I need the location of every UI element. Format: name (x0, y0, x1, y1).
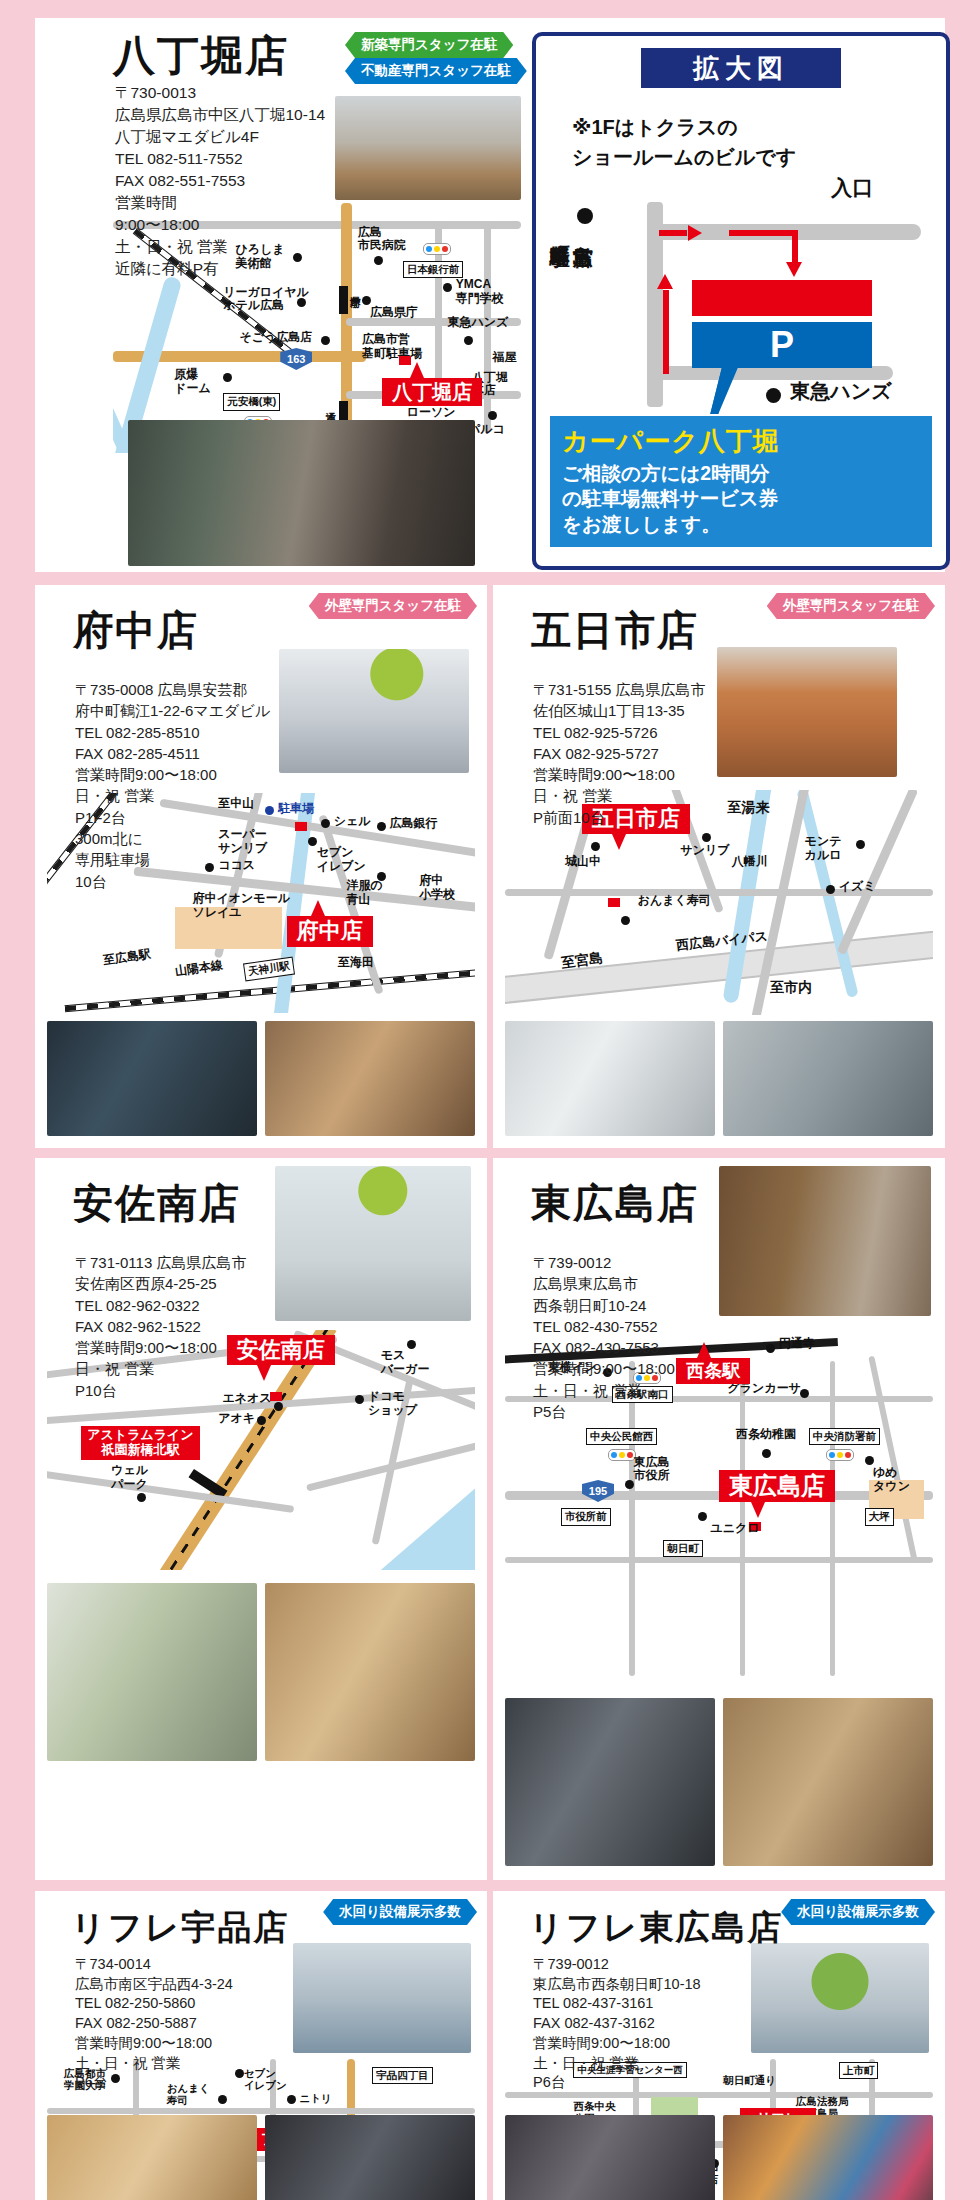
map-dot (362, 296, 371, 305)
map-dot (762, 1449, 771, 1458)
map-label: 宇品四丁目 (372, 2067, 433, 2085)
map-dot (297, 298, 306, 307)
flyer-page: { "colors":{"page_bg":"#f7cdd8","brand_r… (0, 0, 980, 2200)
location-marker-icon (399, 356, 411, 365)
store-photo (279, 649, 469, 773)
route-arrow (792, 230, 798, 262)
map-label: 日本銀行前 (403, 261, 464, 279)
map-dot (308, 837, 317, 846)
store-card-refre-higashihiroshima: 水回り設備展示多数 リフレ東広島店 〒739-0012 東広島市西条朝日町10-… (493, 1891, 945, 2200)
map-label: 中央消防署前 (809, 1428, 880, 1446)
map-dot (274, 1402, 283, 1411)
map-label: セブン イレブン (244, 2067, 287, 2091)
map-label: 府中 小学校 (419, 874, 455, 902)
map-dot (443, 283, 452, 292)
map-label: 至海田 (338, 956, 374, 970)
map-label: ニトリ (300, 2092, 332, 2104)
map-dot (137, 1493, 146, 1502)
map-label: シェル (334, 815, 371, 829)
parking-p-box: P (692, 322, 872, 368)
map-label: 西条幼稚園 (736, 1428, 796, 1442)
map-label: モス バーガー (381, 1349, 430, 1377)
road (47, 2108, 475, 2114)
map-label: 駐車場 (278, 802, 314, 816)
store-title: 安佐南店 (73, 1176, 241, 1231)
store-title: リフレ宇品店 (71, 1905, 289, 1951)
enlarged-map: 入口 P 広島市営 基町駐車場 東急ハンズ (536, 174, 946, 412)
store-info: 〒731-0113 広島県広島市 安佐南区西原4-25-25 TEL 082-9… (75, 1252, 246, 1401)
store-photo (723, 2115, 933, 2200)
map-dot (621, 916, 630, 925)
map-label: ローソン (407, 406, 456, 420)
store-card-hatchobori: 八丁堀店 新築専門スタッフ在駐 不動産専門スタッフ在駐 〒730-0013 広島… (35, 18, 945, 572)
map-dot (826, 885, 835, 894)
map-label: モンテ カルロ (805, 835, 842, 863)
store-card-fuchu: 外壁専門スタッフ在駐 府中店 〒735-0008 広島県安芸郡 府中町鶴江1-2… (35, 585, 487, 1148)
map-label: 原爆 ドーム (174, 368, 211, 396)
store-photo (723, 1021, 933, 1136)
traffic-signal-icon (608, 1449, 636, 1461)
route-arrow-head (688, 225, 702, 241)
enlarged-map-title: 拡大図 (641, 48, 841, 88)
map-label: 広島銀行 (389, 817, 437, 831)
map-dot (223, 373, 232, 382)
map-label: 至市内 (770, 979, 812, 995)
road (647, 366, 893, 380)
map-label: 広島 市民病院 (358, 226, 406, 254)
road (505, 1557, 933, 1563)
store-info: 〒739-0012 広島県東広島市 西条朝日町10-24 TEL 082-430… (533, 1252, 675, 1422)
traffic-signal-icon (423, 243, 451, 255)
map-dot (577, 208, 593, 224)
location-marker-icon (608, 898, 620, 907)
store-photo (265, 2115, 475, 2200)
store-photo (47, 1583, 257, 1761)
store-photo (47, 1021, 257, 1136)
map-label: 福屋 (492, 351, 516, 365)
carpark-name: カーパーク八丁堀 (562, 424, 920, 459)
map-dot (287, 2095, 296, 2104)
store-flag: 八丁堀店 (382, 378, 482, 406)
map-dot (766, 388, 781, 403)
map-label: 元安橋(東) (223, 393, 280, 411)
enlarged-map-note: ※1Fはトクラスの ショールームのビルです (572, 112, 946, 172)
map-label: ドコモ ショップ (368, 1390, 417, 1418)
river (381, 1488, 475, 1570)
store-photo (751, 1943, 929, 2053)
entrance-label: 入口 (831, 176, 873, 200)
store-photo (719, 1166, 931, 1316)
map-label: 大坪 (865, 1508, 894, 1526)
map-label: 至広島駅 (102, 948, 151, 968)
map-dot (591, 842, 600, 851)
store-card-asaminami: 安佐南店 〒731-0113 広島県広島市 安佐南区西原4-25-25 TEL … (35, 1158, 487, 1880)
station-flag: アストラムライン 祇園新橋北駅 (81, 1426, 199, 1460)
store-info: 〒730-0013 広島県広島市中区八丁堀10-14 八丁堀マエダビル4F TE… (115, 82, 325, 280)
map-label: 山陽本線 (175, 959, 224, 979)
map-label: ウェル パーク (111, 1464, 148, 1492)
road (868, 1356, 918, 1563)
map-label: 朝日町 (663, 1540, 703, 1558)
map-label: 中央公民館西 (586, 1428, 657, 1446)
store-photo (275, 1166, 471, 1321)
store-photo (505, 2115, 715, 2200)
map-label: そごう広島店 (239, 331, 312, 345)
map-dot (865, 1456, 874, 1465)
map-label: イズミ (839, 880, 876, 894)
store-title: 八丁堀店 (113, 28, 289, 84)
road (47, 1471, 294, 1514)
map-dot (702, 833, 711, 842)
map-label: リーガロイヤル ホテル広島 (223, 286, 309, 314)
map-dot (321, 336, 330, 345)
store-info: 〒739-0012 東広島市西条朝日町10-18 TEL 082-437-316… (533, 1955, 701, 2093)
map-label: 至湯来 (728, 799, 770, 815)
route-shield: 163 (280, 348, 312, 370)
store-photo (723, 1698, 933, 1866)
road (740, 1361, 745, 1676)
store-photo (265, 1021, 475, 1136)
map-dot (856, 840, 865, 849)
showroom-building (692, 280, 872, 316)
map-label: 八幡川 (732, 855, 768, 869)
store-card-higashihiroshima: 東広島店 〒739-0012 広島県東広島市 西条朝日町10-24 TEL 08… (493, 1158, 945, 1880)
map-dot (766, 1344, 775, 1353)
map-label: 洋服の 青山 (347, 879, 383, 907)
map-label: 円通寺 (779, 1337, 815, 1351)
map-dot (218, 2095, 227, 2104)
badge-shinchiku: 新築専門スタッフ在駐 (345, 32, 513, 58)
enlarged-map-panel: 拡大図 ※1Fはトクラスの ショールームのビルです 入口 P 広島市営 基町駐車… (532, 32, 950, 570)
map-label: 府中イオンモール ソレイユ (193, 892, 290, 920)
map-dot (488, 411, 497, 420)
map-dot (625, 1480, 634, 1489)
map-dot (407, 1340, 416, 1349)
store-photo (265, 1583, 475, 1761)
map-dot (377, 822, 386, 831)
map-dot (355, 1395, 364, 1404)
map-label: YMCA 専門学校 (456, 278, 504, 306)
badge-gaiheki: 外壁専門スタッフ在駐 (767, 593, 935, 619)
store-photo (505, 1698, 715, 1866)
map-label: グランカーサ (728, 1382, 801, 1396)
station-flag: 西条駅 (676, 1358, 750, 1384)
map-label: おんまく寿司 (638, 894, 711, 908)
map-label: 市役所前 (561, 1508, 611, 1526)
store-title: 五日市店 (531, 603, 699, 658)
map-label: 上市町 (839, 2062, 879, 2080)
badge-mizumawari: 水回り設備展示多数 (781, 1899, 935, 1925)
store-title: 東広島店 (531, 1176, 699, 1231)
carpark-notice-text: ご相談の方には2時間分 の駐車場無料サービス券 をお渡しします。 (562, 461, 920, 537)
route-arrow (663, 290, 669, 374)
store-photo (505, 1021, 715, 1136)
city-parking-label: 広島市営 基町駐車場 (548, 230, 594, 405)
store-photo (717, 647, 897, 777)
road (837, 790, 918, 955)
badge-mizumawari: 水回り設備展示多数 (323, 1899, 477, 1925)
route-arrow (729, 230, 799, 236)
badge-fudosan: 不動産専門スタッフ在駐 (345, 58, 527, 84)
map-label: 朝日町通り (723, 2074, 776, 2086)
map-label: 城山中 (565, 855, 601, 869)
store-title: 府中店 (73, 603, 199, 658)
map-dot (464, 336, 473, 345)
map-label: 東急ハンズ (790, 380, 900, 403)
traffic-signal-icon (826, 1449, 854, 1461)
store-flag: 府中店 (287, 916, 373, 947)
map-label: 東急ハンズ (448, 316, 509, 330)
store-info: 〒734-0014 広島市南区宇品西4-3-24 TEL 082-250-586… (75, 1955, 233, 2093)
location-marker-icon (295, 822, 307, 831)
route-arrow (659, 230, 687, 236)
store-title: リフレ東広島店 (529, 1905, 783, 1951)
store-card-refre-ujina: 水回り設備展示多数 リフレ宇品店 〒734-0014 広島市南区宇品西4-3-2… (35, 1891, 487, 2200)
route-arrow-head (657, 274, 673, 289)
store-photo (128, 420, 475, 566)
map-dot (698, 1512, 707, 1521)
map-label: 広島県庁 (370, 306, 418, 320)
badge-gaiheki: 外壁専門スタッフ在駐 (309, 593, 477, 619)
store-photo (293, 1943, 471, 2053)
store-info: 〒731-5155 広島県広島市 佐伯区城山1丁目13-35 TEL 082-9… (533, 679, 706, 828)
store-photo (335, 96, 521, 200)
road (830, 1361, 835, 1676)
map-label: サンリブ (680, 844, 729, 858)
map-label: アオキ (218, 1412, 255, 1426)
map-label: セブン イレブン (317, 846, 366, 874)
parking-notice-box: カーパーク八丁堀 ご相談の方には2時間分 の駐車場無料サービス券 をお渡しします… (550, 416, 932, 547)
store-card-itsukaichi: 外壁専門スタッフ在駐 五日市店 〒731-5155 広島県広島市 佐伯区城山1丁… (493, 585, 945, 1148)
map-label: 東広島 市役所 (633, 1456, 669, 1484)
store-photo (47, 2115, 257, 2200)
store-flag: 東広島店 (719, 1470, 835, 1503)
store-info: 〒735-0008 広島県安芸郡 府中町鶴江1-22-6マエダビル TEL 08… (75, 679, 270, 892)
map-label: ゆめ タウン (873, 1466, 910, 1494)
station-bar (339, 286, 348, 314)
map-dot (374, 256, 383, 265)
route-arrow-head (786, 262, 802, 277)
